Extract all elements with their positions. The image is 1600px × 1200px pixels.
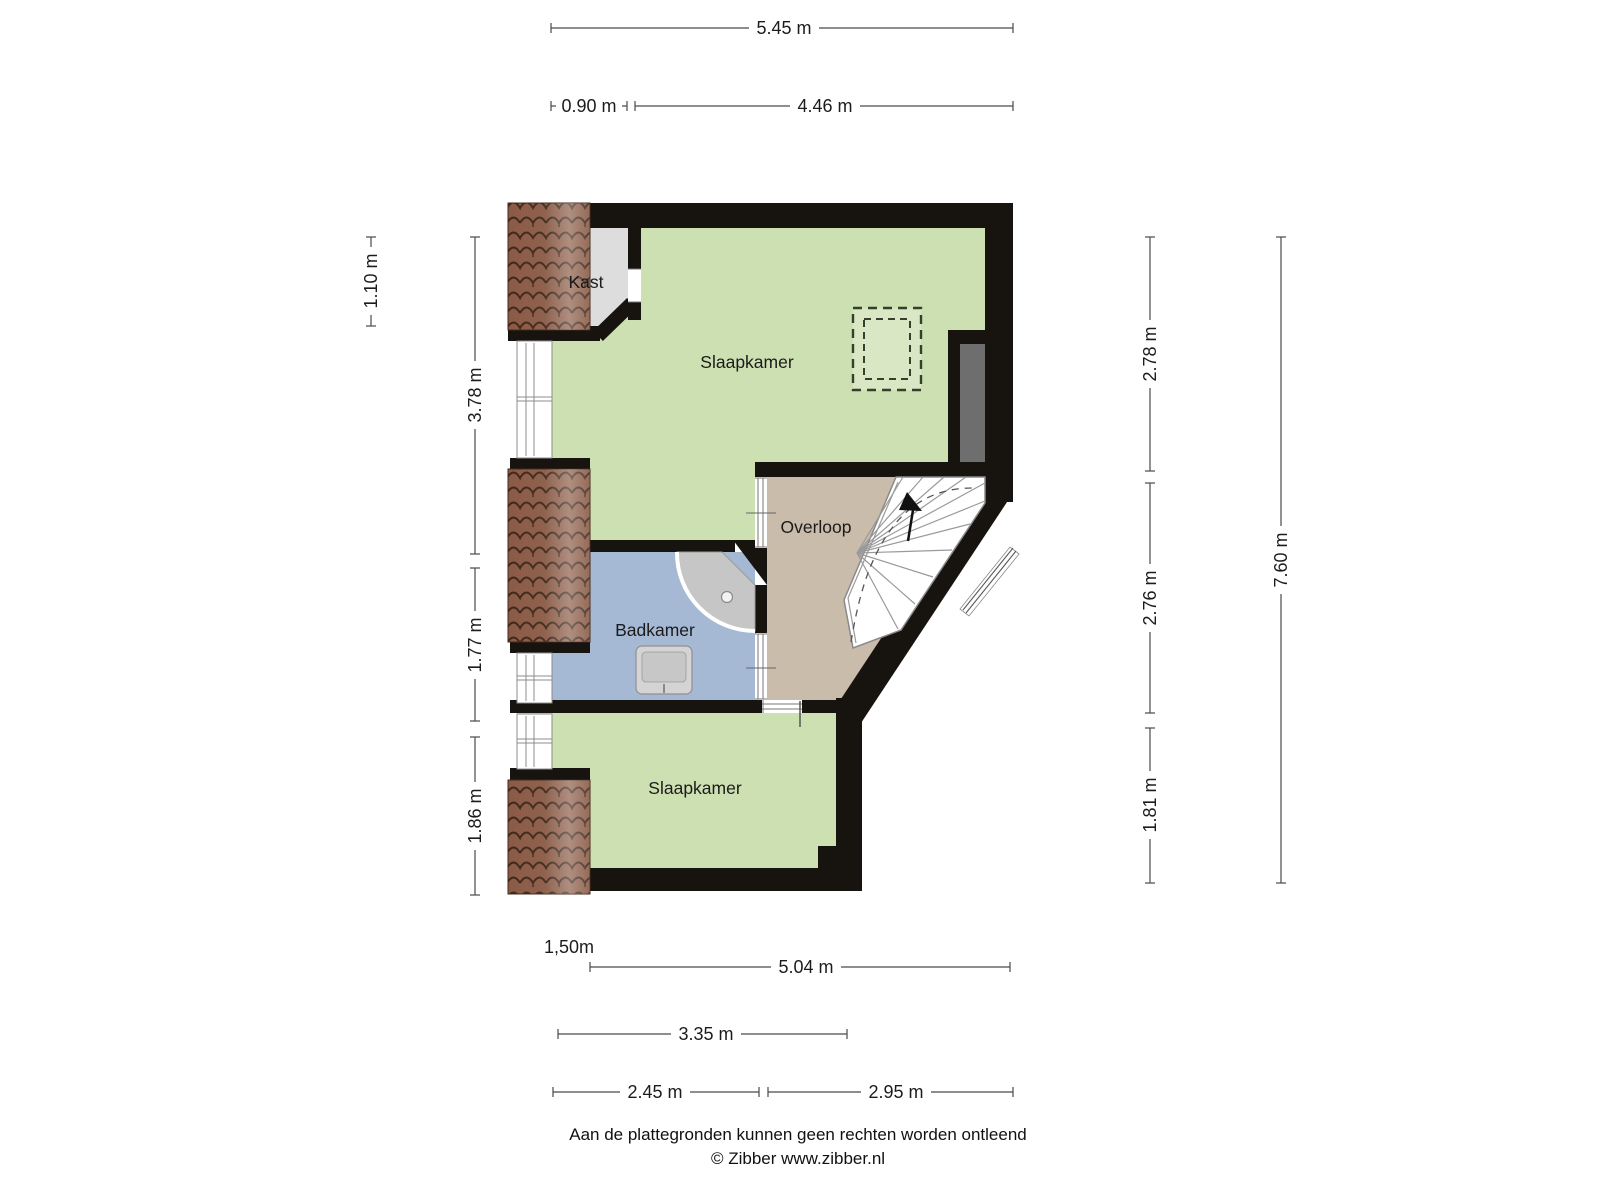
label-overloop: Overloop [780, 517, 851, 537]
roof-tiles-bottom-left [508, 780, 590, 894]
dim-headroom: 1,50m [544, 937, 594, 957]
floorplan-page: Kast Slaapkamer Overloop Badkamer Slaapk… [0, 0, 1600, 1200]
svg-text:4.46 m: 4.46 m [797, 96, 852, 116]
roof-tiles-middle-left [508, 469, 590, 642]
dim-left-top: 3.78 m [464, 237, 486, 554]
svg-text:3.78 m: 3.78 m [465, 367, 485, 422]
roof-tiles-top-left [508, 203, 590, 330]
svg-text:1.86 m: 1.86 m [465, 788, 485, 843]
dim-right-mid: 2.76 m [1139, 483, 1161, 713]
dim-right-total: 7.60 m [1270, 237, 1292, 883]
door-kast [628, 269, 641, 302]
dim-right-top: 2.78 m [1139, 237, 1161, 471]
dim-bottom-total: 5.04 m [590, 956, 1010, 978]
dim-top-kast: 0.90 m [551, 95, 627, 117]
svg-text:2.45 m: 2.45 m [627, 1082, 682, 1102]
svg-text:3.35 m: 3.35 m [678, 1024, 733, 1044]
dim-left-mid: 1.77 m [464, 568, 486, 721]
skylight-dashed [853, 308, 921, 390]
svg-text:0.90 m: 0.90 m [561, 96, 616, 116]
copyright-text: © Zibber www.zibber.nl [711, 1149, 885, 1168]
svg-text:2.95 m: 2.95 m [868, 1082, 923, 1102]
svg-text:1.10 m: 1.10 m [361, 253, 381, 308]
washbasin [636, 646, 692, 694]
shower-drain-icon [722, 592, 733, 603]
void-box [960, 344, 985, 462]
dim-top-room: 4.46 m [635, 95, 1013, 117]
svg-text:2.76 m: 2.76 m [1140, 570, 1160, 625]
dim-bottom-span: 3.35 m [558, 1023, 847, 1045]
dim-left-roof: 1.10 m [360, 237, 382, 326]
label-kast: Kast [568, 272, 603, 292]
floorplan-drawing: Kast Slaapkamer Overloop Badkamer Slaapk… [0, 0, 1600, 1200]
label-badkamer: Badkamer [615, 620, 695, 640]
svg-text:1.81 m: 1.81 m [1140, 777, 1160, 832]
window-left-middle [517, 653, 552, 703]
svg-text:5.45 m: 5.45 m [756, 18, 811, 38]
svg-text:2.78 m: 2.78 m [1140, 326, 1160, 381]
dim-bottom-left: 2.45 m [553, 1081, 759, 1103]
roof-tiles [508, 203, 590, 894]
svg-text:1.77 m: 1.77 m [465, 617, 485, 672]
disclaimer-text: Aan de plattegronden kunnen geen rechten… [569, 1125, 1026, 1144]
dim-right-bottom: 1.81 m [1139, 728, 1161, 883]
label-slaapkamer-top: Slaapkamer [700, 352, 794, 372]
dim-top-total: 5.45 m [551, 17, 1013, 39]
svg-text:7.60 m: 7.60 m [1271, 532, 1291, 587]
window-left-top [517, 341, 552, 458]
svg-text:5.04 m: 5.04 m [778, 957, 833, 977]
dim-bottom-right: 2.95 m [768, 1081, 1013, 1103]
label-slaapkamer-bottom: Slaapkamer [648, 778, 742, 798]
dim-left-bottom: 1.86 m [464, 737, 486, 895]
window-left-bottom [517, 714, 552, 769]
